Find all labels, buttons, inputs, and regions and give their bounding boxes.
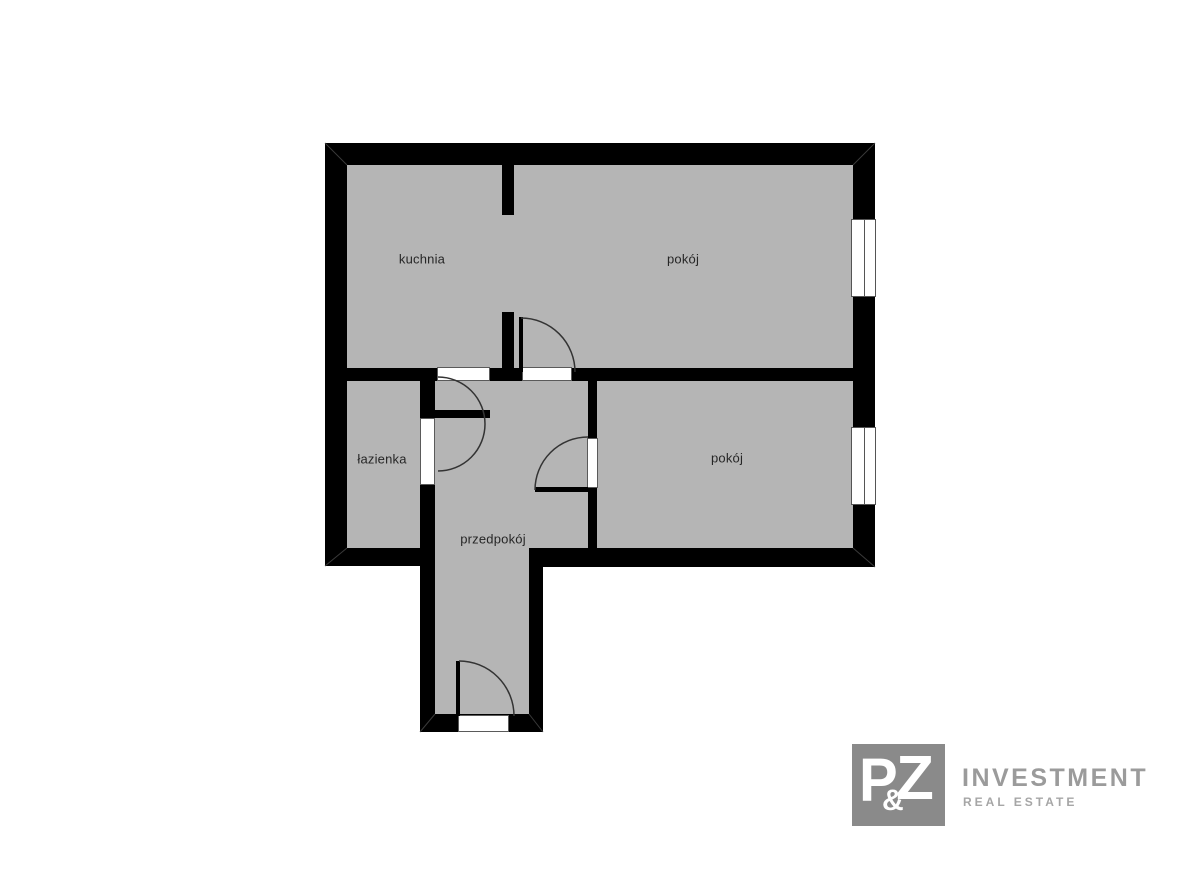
wall-south: [529, 548, 875, 567]
wall-top: [325, 143, 875, 165]
room-label-lazienka: łazienka: [357, 452, 406, 467]
wall-bathroom-right-upper: [420, 378, 435, 418]
door-threshold-entrance: [458, 715, 509, 732]
logo-monogram-square: P Z &: [852, 744, 945, 826]
floor-corridor: [435, 550, 529, 716]
room-label-pokoj-upper: pokój: [667, 252, 699, 267]
door-threshold-upper-room: [522, 367, 572, 381]
door-leaf-entrance: [456, 661, 460, 716]
room-label-kuchnia: kuchnia: [399, 252, 445, 267]
wall-hall-room-lower: [588, 488, 597, 550]
wall-corridor-left: [420, 485, 435, 732]
wall-divider-stub-top: [502, 165, 514, 215]
floor-plan-image: kuchnia pokój łazienka pokój przedpokój …: [0, 0, 1200, 879]
wall-bathroom-bottom: [325, 548, 435, 566]
wall-divider-stub-bottom: [502, 312, 514, 369]
door-leaf-bathroom: [435, 410, 490, 418]
room-label-przedpokoj: przedpokój: [460, 532, 526, 547]
wall-left: [325, 143, 347, 566]
room-label-pokoj-lower: pokój: [711, 451, 743, 466]
door-leaf-upper-room: [519, 317, 523, 372]
wall-hall-room-upper: [588, 380, 597, 438]
floor-upper-rooms: [347, 165, 853, 380]
door-threshold-lower-room: [587, 438, 598, 488]
window-symbol-lower-room: [851, 427, 876, 505]
logo-company-name: INVESTMENT: [962, 764, 1148, 793]
window-symbol-upper-room: [851, 219, 876, 297]
floor-hallway: [435, 378, 597, 552]
opening-kitchen-hall: [437, 367, 490, 381]
logo-ampersand: &: [882, 786, 904, 816]
door-leaf-lower-room: [535, 487, 588, 492]
logo-tagline: REAL ESTATE: [963, 795, 1077, 809]
door-threshold-bathroom: [420, 418, 435, 485]
wall-corridor-right: [529, 548, 543, 732]
